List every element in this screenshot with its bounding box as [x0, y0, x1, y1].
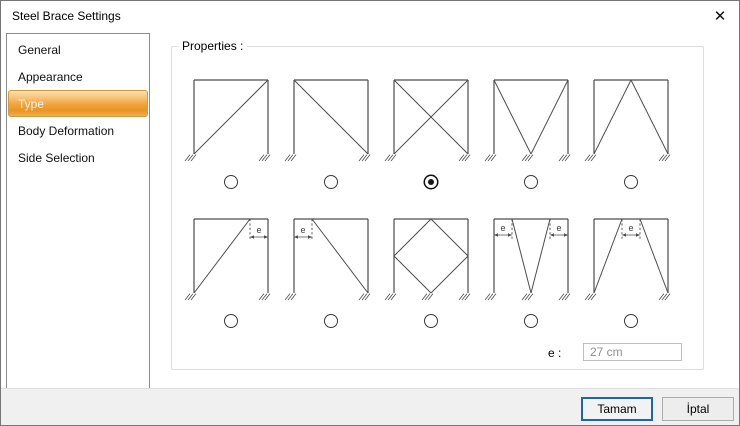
steel-brace-settings-dialog: Steel Brace Settings ✕ General Appearanc…: [0, 0, 740, 426]
inverted-v-brace-radio[interactable]: [624, 175, 638, 189]
diagonal-up-radio[interactable]: [224, 175, 238, 189]
sidebar-item-type[interactable]: Type: [8, 90, 148, 117]
diagonal-down-eccentric-diagram: e: [281, 201, 381, 303]
properties-groupbox-label: Properties :: [178, 39, 247, 53]
diagonal-down-diagram: [281, 62, 381, 164]
svg-text:e: e: [556, 223, 561, 233]
brace-option-v-brace: [481, 62, 581, 189]
v-brace-eccentric-diagram: ee: [481, 201, 581, 303]
svg-text:e: e: [256, 225, 261, 235]
v-brace-eccentric-radio[interactable]: [524, 314, 538, 328]
svg-text:e: e: [628, 223, 633, 233]
brace-option-diagonal-down: [281, 62, 381, 189]
brace-option-diamond-brace: [381, 201, 481, 328]
e-input[interactable]: [583, 343, 682, 361]
brace-option-x-brace: [381, 62, 481, 189]
inverted-v-brace-diagram: [581, 62, 681, 164]
brace-grid-row-1: [181, 62, 681, 189]
button-footer: Tamam İptal: [1, 388, 739, 425]
e-label: e :: [548, 346, 561, 360]
brace-option-v-brace-eccentric: ee: [481, 201, 581, 328]
ok-button[interactable]: Tamam: [581, 397, 653, 421]
svg-text:e: e: [500, 223, 505, 233]
diagonal-down-radio[interactable]: [324, 175, 338, 189]
close-button[interactable]: ✕: [702, 2, 738, 30]
sidebar-item-appearance[interactable]: Appearance: [8, 63, 148, 90]
sidebar-item-body-deformation[interactable]: Body Deformation: [8, 117, 148, 144]
brace-grid-row-2: eeeee: [181, 201, 681, 328]
x-brace-radio[interactable]: [424, 175, 438, 189]
brace-option-inverted-v-brace: [581, 62, 681, 189]
diamond-brace-diagram: [381, 201, 481, 303]
diagonal-up-diagram: [181, 62, 281, 164]
cancel-button[interactable]: İptal: [662, 397, 734, 421]
svg-text:e: e: [300, 225, 305, 235]
x-brace-diagram: [381, 62, 481, 164]
inverted-v-brace-eccentric-radio[interactable]: [624, 314, 638, 328]
brace-option-diagonal-down-eccentric: e: [281, 201, 381, 328]
title-bar: Steel Brace Settings ✕: [1, 1, 739, 31]
close-icon: ✕: [714, 9, 727, 24]
sidebar-item-general[interactable]: General: [8, 36, 148, 63]
inverted-v-brace-eccentric-diagram: e: [581, 201, 681, 303]
brace-option-diagonal-up: [181, 62, 281, 189]
diagonal-up-eccentric-radio[interactable]: [224, 314, 238, 328]
window-title: Steel Brace Settings: [12, 9, 121, 23]
diagonal-down-eccentric-radio[interactable]: [324, 314, 338, 328]
sidebar-item-side-selection[interactable]: Side Selection: [8, 144, 148, 171]
diagonal-up-eccentric-diagram: e: [181, 201, 281, 303]
v-brace-radio[interactable]: [524, 175, 538, 189]
diamond-brace-radio[interactable]: [424, 314, 438, 328]
brace-option-diagonal-up-eccentric: e: [181, 201, 281, 328]
settings-sidebar: General Appearance Type Body Deformation…: [6, 33, 150, 389]
brace-option-inverted-v-brace-eccentric: e: [581, 201, 681, 328]
v-brace-diagram: [481, 62, 581, 164]
